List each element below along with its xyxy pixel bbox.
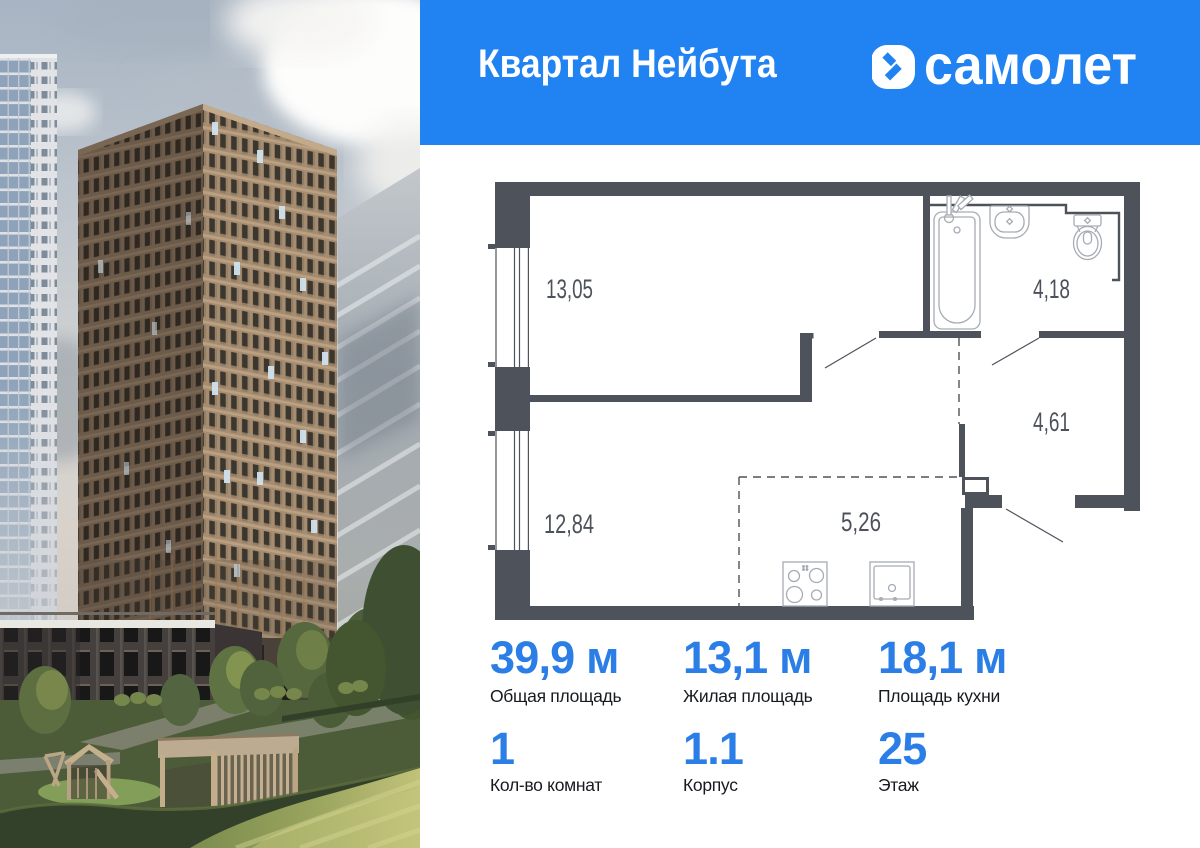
svg-text:12,84: 12,84 xyxy=(544,509,594,539)
svg-text:5,26: 5,26 xyxy=(841,507,881,537)
svg-text:4,18: 4,18 xyxy=(1033,274,1070,304)
svg-text:13,05: 13,05 xyxy=(546,274,593,304)
svg-text:4,61: 4,61 xyxy=(1033,407,1070,437)
